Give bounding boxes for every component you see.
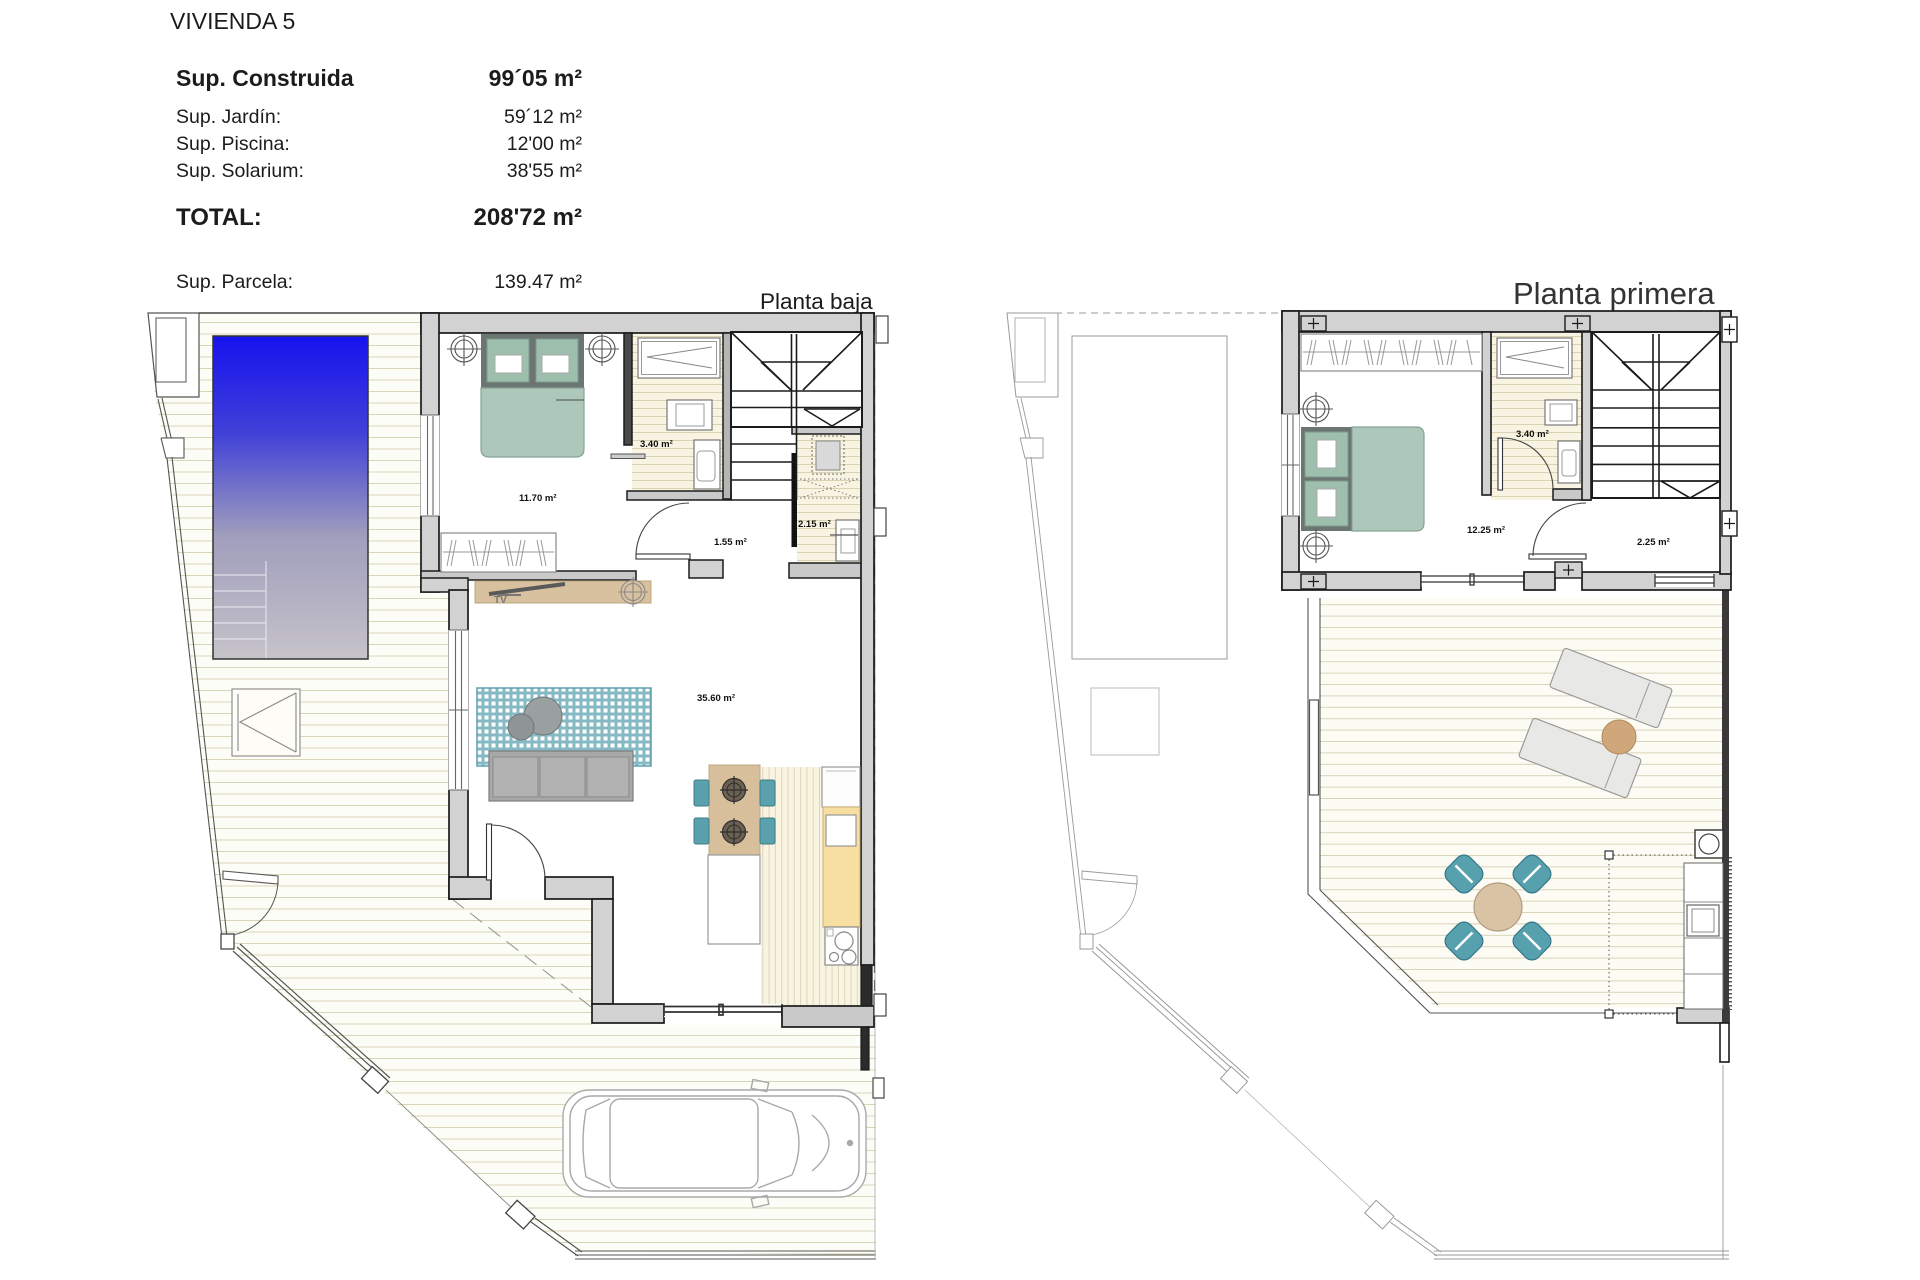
svg-text:Sup. Construida: Sup. Construida [176, 65, 354, 91]
svg-text:35.60 m²: 35.60 m² [697, 693, 735, 704]
svg-text:Sup. Piscina:: Sup. Piscina: [176, 133, 290, 155]
svg-text:Sup. Jardín:: Sup. Jardín: [176, 106, 281, 128]
svg-text:1.55 m²: 1.55 m² [714, 537, 747, 548]
svg-text:VIVIENDA 5: VIVIENDA 5 [170, 8, 295, 34]
svg-text:2.15 m²: 2.15 m² [798, 519, 831, 530]
svg-text:139.47 m²: 139.47 m² [494, 271, 582, 293]
svg-text:Sup. Solarium:: Sup. Solarium: [176, 160, 304, 182]
svg-text:99´05 m²: 99´05 m² [489, 65, 583, 91]
svg-text:TV: TV [494, 595, 507, 606]
svg-text:12.25 m²: 12.25 m² [1467, 525, 1505, 536]
svg-text:38'55 m²: 38'55 m² [507, 160, 583, 182]
svg-text:3.40 m²: 3.40 m² [640, 439, 673, 450]
svg-text:Planta primera: Planta primera [1513, 276, 1715, 311]
svg-text:208'72 m²: 208'72 m² [474, 204, 582, 231]
svg-text:11.70 m²: 11.70 m² [519, 493, 557, 504]
svg-text:59´12 m²: 59´12 m² [504, 106, 583, 128]
svg-text:TOTAL:: TOTAL: [176, 204, 262, 231]
svg-text:3.40 m²: 3.40 m² [1516, 429, 1549, 440]
svg-text:2.25 m²: 2.25 m² [1637, 537, 1670, 548]
svg-text:Planta baja: Planta baja [760, 289, 873, 314]
svg-text:12'00 m²: 12'00 m² [507, 133, 583, 155]
svg-text:Sup. Parcela:: Sup. Parcela: [176, 271, 293, 293]
